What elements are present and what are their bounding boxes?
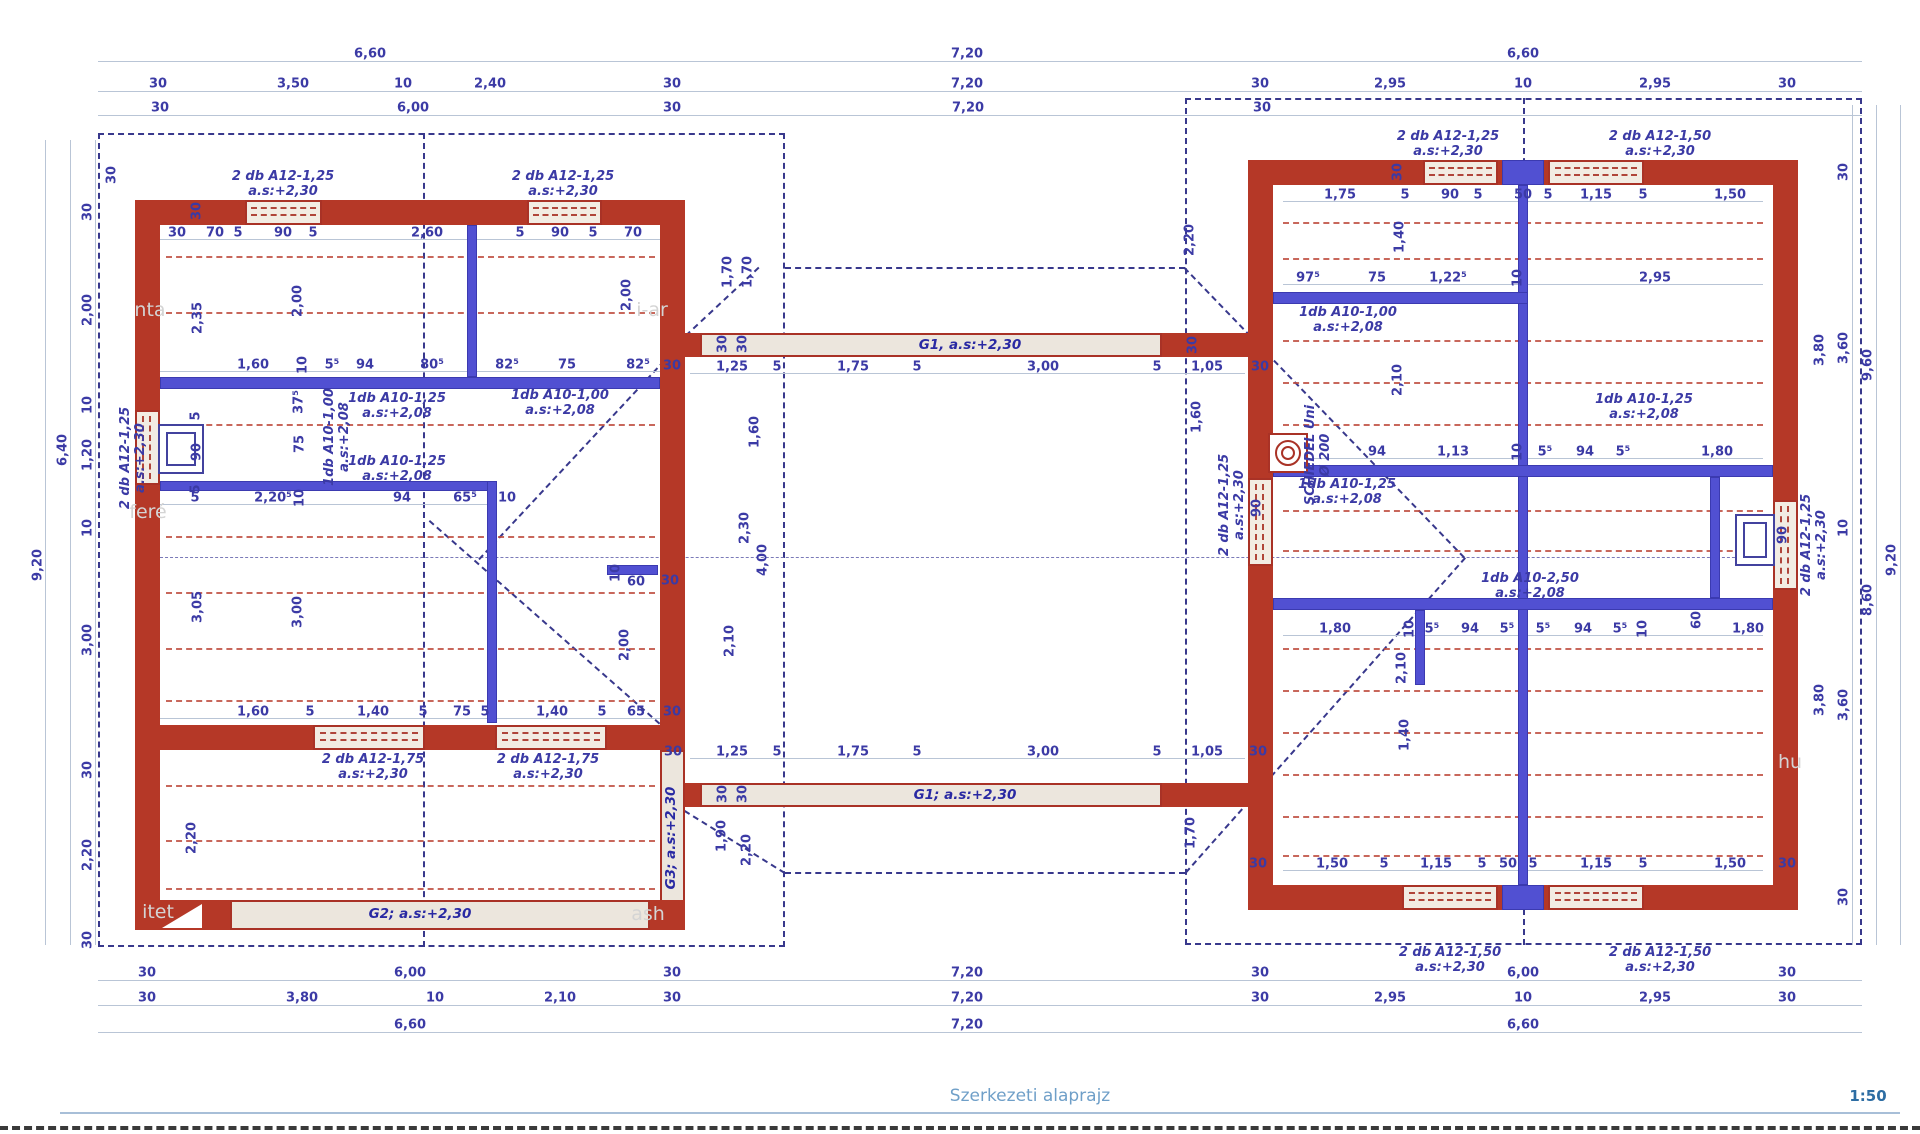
dim-label: 30 <box>716 785 731 803</box>
dim-label: 3,00 <box>81 624 96 656</box>
flue-block <box>1502 885 1544 910</box>
dim-label: 5 <box>912 745 921 760</box>
dim-label: 1,60 <box>748 416 763 448</box>
rebar-label: 1db A10-1,25a.s:+2,08 <box>1595 392 1693 422</box>
dim-label: 97⁵ <box>1296 271 1320 286</box>
reinforced-beam <box>1273 292 1528 304</box>
dim-label: 75 <box>558 358 576 373</box>
dim-label: 30 <box>105 166 120 184</box>
watermark: itet <box>142 901 174 923</box>
wall-segment <box>1162 333 1248 357</box>
dim-label: 30 <box>661 574 679 589</box>
dim-label: 5⁵ <box>1616 445 1631 460</box>
rebar-label: 2 db A12-1,50a.s:+2,30 <box>1609 129 1711 159</box>
dim-label: 30 <box>1837 163 1852 181</box>
dim-label: 2,00 <box>291 285 306 317</box>
dim-label: 70 <box>624 226 642 241</box>
lintel <box>1548 160 1644 185</box>
watermark: hu <box>1778 751 1802 773</box>
dim-label: 5 <box>588 226 597 241</box>
dim-label: 3,00 <box>291 596 306 628</box>
dim-label: 1,25 <box>716 745 748 760</box>
page-edge-dashes <box>0 1126 1920 1130</box>
dim-label: 1,05 <box>1191 745 1223 760</box>
dim-label: 5 <box>418 705 427 720</box>
dim-label: 30 <box>736 335 751 353</box>
rebar-label: 2 db A12-1,25a.s:+2,30 <box>1217 454 1247 556</box>
dim-label: 1,20 <box>81 439 96 471</box>
dim-line <box>45 140 46 945</box>
dim-label: 90 <box>274 226 292 241</box>
dim-label: 5 <box>1638 188 1647 203</box>
dim-label: 6,00 <box>397 101 429 116</box>
dim-label: 2,10 <box>723 625 738 657</box>
dim-label: 1,40 <box>536 705 568 720</box>
dim-label: 70 <box>206 226 224 241</box>
dim-label: 9,20 <box>31 549 46 581</box>
dim-label: 75 <box>293 435 308 453</box>
dim-label: 10 <box>1837 519 1852 537</box>
dim-label: 6,00 <box>1507 966 1539 981</box>
dim-label: 37⁵ <box>292 390 307 414</box>
dim-label: 1,80 <box>1319 622 1351 637</box>
dim-line <box>160 371 660 372</box>
dim-label: 7,20 <box>951 47 983 62</box>
dim-label: 3,80 <box>286 991 318 1006</box>
dim-label: 7,20 <box>951 77 983 92</box>
dim-label: 94 <box>1576 445 1594 460</box>
dim-label: 94 <box>1461 622 1479 637</box>
dim-label: 90 <box>190 443 205 461</box>
dim-label: 30 <box>1778 77 1796 92</box>
dim-label: 5 <box>1379 857 1388 872</box>
rebar-label: 2 db A12-1,50a.s:+2,30 <box>1399 945 1501 975</box>
dim-label: 65 <box>627 705 645 720</box>
dim-label: 94 <box>1574 622 1592 637</box>
drawing-title: Szerkezeti alaprajz <box>950 1086 1110 1106</box>
dim-label: 1,40 <box>1393 221 1408 253</box>
dim-label: 2,30 <box>738 512 753 544</box>
dim-label: 1,75 <box>837 360 869 375</box>
dim-label: 30 <box>1251 77 1269 92</box>
dim-label: 1,70 <box>721 256 736 288</box>
dim-label: 2,95 <box>1639 77 1671 92</box>
dim-label: 5 <box>1528 857 1537 872</box>
dim-label: 2,95 <box>1374 77 1406 92</box>
lintel <box>245 200 322 225</box>
dim-label: 7,20 <box>951 1018 983 1033</box>
dim-label: 30 <box>663 101 681 116</box>
rebar-label: 1db A10-2,50a.s:+2,08 <box>1481 571 1579 601</box>
dim-label: 7,20 <box>952 101 984 116</box>
beam-label: G1, a.s:+2,30 <box>919 337 1022 353</box>
rebar-label: 1db A10-1,00a.s:+2,08 <box>511 388 609 418</box>
lintel <box>527 200 602 225</box>
dim-label: 1,15 <box>1580 857 1612 872</box>
dim-line <box>95 140 96 945</box>
dim-label: 1,25 <box>716 360 748 375</box>
flue-block <box>1502 160 1544 185</box>
rebar-label: 2 db A12-1,50a.s:+2,30 <box>1609 945 1711 975</box>
dim-label: 30 <box>664 745 682 760</box>
dim-label: 10 <box>1403 620 1418 638</box>
dim-line <box>1852 105 1853 945</box>
dim-label: 30 <box>1391 163 1406 181</box>
dim-label: 30 <box>151 101 169 116</box>
reinforced-beam <box>1273 465 1773 477</box>
dim-label: 2,20 <box>1183 224 1198 256</box>
dim-label: 5 <box>189 411 204 420</box>
dim-line <box>70 140 71 945</box>
beam-label: G3; a.s:+2,30 <box>663 787 679 890</box>
floor-plan-canvas: Szerkezeti alaprajz 1:50 6,607,206,60303… <box>0 0 1920 1134</box>
dim-label: 1,75 <box>1324 188 1356 203</box>
dim-label: 2,20 <box>740 834 755 866</box>
rebar-label: 2 db A12-1,75a.s:+2,30 <box>497 752 599 782</box>
dim-label: 9,20 <box>1885 544 1900 576</box>
dim-label: 1,80 <box>1701 445 1733 460</box>
dim-label: 5 <box>597 705 606 720</box>
slab-span-line <box>166 840 655 842</box>
dim-label: 30 <box>663 705 681 720</box>
dim-label: 90 <box>1441 188 1459 203</box>
dim-label: 5 <box>912 360 921 375</box>
dim-label: 50 <box>1514 188 1532 203</box>
slab-span-line <box>166 256 655 258</box>
dim-label: 50 <box>1499 857 1517 872</box>
wall-segment <box>1162 783 1248 807</box>
dim-label: 10 <box>293 489 308 507</box>
dim-label: 10 <box>498 491 516 506</box>
dim-label: 3,60 <box>1837 332 1852 364</box>
slab-span-line <box>166 592 655 594</box>
dim-label: 10 <box>1636 620 1651 638</box>
dim-label: 1,60 <box>237 705 269 720</box>
wall-segment <box>685 783 700 807</box>
dim-label: 90 <box>1250 499 1265 517</box>
slab-span-line <box>166 312 655 314</box>
lintel <box>495 725 607 750</box>
dim-label: 5⁵ <box>325 358 340 373</box>
rebar-label: 1db A10-1,00a.s:+2,08 <box>1299 305 1397 335</box>
dim-label: 2,95 <box>1639 271 1671 286</box>
dim-label: 3,50 <box>277 77 309 92</box>
dim-label: 1,22⁵ <box>1429 271 1467 286</box>
dim-label: 2,20 <box>81 839 96 871</box>
reinforced-column <box>467 225 477 377</box>
dim-label: 75 <box>1368 271 1386 286</box>
chimney-label: SCHIEDEL UniØ 200 <box>1303 405 1333 505</box>
dim-label: 1,60 <box>1190 401 1205 433</box>
slab-span-line <box>166 785 655 787</box>
dim-label: 80⁵ <box>420 358 444 373</box>
dim-label: 3,80 <box>1813 334 1828 366</box>
lintel <box>1773 500 1798 590</box>
dim-label: 2,10 <box>1395 652 1410 684</box>
wall-segment <box>135 200 685 225</box>
dim-label: 5 <box>1638 857 1647 872</box>
dim-label: 1,80 <box>1732 622 1764 637</box>
rebar-label: 1db A10-1,25a.s:+2,08 <box>348 454 446 484</box>
dim-label: 30 <box>138 991 156 1006</box>
rebar-label: 2 db A12-1,25a.s:+2,30 <box>1397 129 1499 159</box>
lintel <box>313 725 425 750</box>
dim-label: 5 <box>1473 188 1482 203</box>
dim-label: 5 <box>1477 857 1486 872</box>
dim-label: 30 <box>1249 857 1267 872</box>
dim-label: 1,15 <box>1420 857 1452 872</box>
lintel <box>1548 885 1644 910</box>
roof-connector-top <box>785 267 1185 269</box>
dim-label: 1,15 <box>1580 188 1612 203</box>
dim-label: 5 <box>190 491 199 506</box>
dim-label: 1,40 <box>357 705 389 720</box>
dim-label: 3,05 <box>191 591 206 623</box>
dim-label: 10 <box>81 519 96 537</box>
rebar-label: 2 db A12-1,25a.s:+2,30 <box>232 169 334 199</box>
wall-segment <box>135 225 160 930</box>
dim-label: 5 <box>1152 360 1161 375</box>
dim-label: 2,00 <box>618 629 633 661</box>
axis-line-horizontal <box>135 557 1795 558</box>
dim-label: 10 <box>1511 443 1526 461</box>
lintel <box>1402 885 1498 910</box>
dim-label: 2,20 <box>185 822 200 854</box>
dim-label: 5 <box>515 226 524 241</box>
dim-label: 30 <box>138 966 156 981</box>
dim-label: 10 <box>426 991 444 1006</box>
drawing-scale: 1:50 <box>1849 1087 1886 1105</box>
dim-label: 10 <box>1514 77 1532 92</box>
dim-label: 5 <box>1400 188 1409 203</box>
dim-label: 60 <box>1690 611 1705 629</box>
dim-label: 2,10 <box>544 991 576 1006</box>
slab-span-line <box>166 536 655 538</box>
dim-label: 6,60 <box>354 47 386 62</box>
dim-label: 10 <box>81 396 96 414</box>
dim-label: 94 <box>393 491 411 506</box>
reinforced-column <box>1710 477 1720 598</box>
dim-label: 2,95 <box>1639 991 1671 1006</box>
dim-line <box>1876 105 1877 945</box>
dim-label: 30 <box>1778 966 1796 981</box>
dim-label: 1,50 <box>1714 857 1746 872</box>
dim-label: 5⁵ <box>1613 622 1628 637</box>
dim-label: 90 <box>551 226 569 241</box>
dim-label: 5⁵ <box>1425 622 1440 637</box>
dim-label: 2,00 <box>620 279 635 311</box>
dim-label: 30 <box>1251 991 1269 1006</box>
dim-label: 6,00 <box>394 966 426 981</box>
chimney-flue-inner <box>1281 446 1295 460</box>
dim-label: 2,35 <box>191 302 206 334</box>
dim-label: 3,80 <box>1813 684 1828 716</box>
dim-label: 30 <box>1778 991 1796 1006</box>
rebar-label: 2 db A12-1,75a.s:+2,30 <box>322 752 424 782</box>
dim-label: 7,20 <box>951 991 983 1006</box>
reinforced-wall <box>1518 185 1528 885</box>
slab-span-line <box>166 700 655 702</box>
dim-label: 4,00 <box>756 544 771 576</box>
dim-label: 10 <box>1511 269 1526 287</box>
dim-label: 2,95 <box>1374 991 1406 1006</box>
dim-label: 30 <box>663 359 681 374</box>
dim-label: 30 <box>1251 966 1269 981</box>
dim-label: 10 <box>394 77 412 92</box>
watermark: nta <box>134 299 165 321</box>
dim-label: 60 <box>627 575 645 590</box>
lintel <box>1423 160 1498 185</box>
dim-label: 8,60 <box>1861 584 1876 616</box>
dim-label: 2,60 <box>411 226 443 241</box>
dim-label: 90 <box>1776 526 1791 544</box>
dim-label: 6,60 <box>394 1018 426 1033</box>
dim-label: 30 <box>81 203 96 221</box>
dim-label: 94 <box>1368 445 1386 460</box>
dim-label: 5⁵ <box>1536 622 1551 637</box>
dim-label: 30 <box>1778 857 1796 872</box>
dim-label: 10 <box>609 564 624 582</box>
dim-label: 65⁵ <box>453 491 477 506</box>
dim-label: 30 <box>1186 336 1201 354</box>
dim-label: 5 <box>772 360 781 375</box>
title-rule <box>60 1112 1900 1114</box>
rebar-label: 2 db A12-1,25a.s:+2,30 <box>512 169 614 199</box>
watermark: ash <box>631 903 665 925</box>
dim-line <box>160 718 660 719</box>
dim-label: 1,13 <box>1437 445 1469 460</box>
dim-label: 30 <box>1253 101 1271 116</box>
dim-label: 1,70 <box>741 256 756 288</box>
rebar-label: 2 db A12-1,25a.s:+2,30 <box>1799 494 1829 596</box>
dim-label: 1,40 <box>1398 719 1413 751</box>
dim-label: 1,75 <box>837 745 869 760</box>
dim-label: 3,00 <box>1027 745 1059 760</box>
dim-label: 10 <box>296 356 311 374</box>
dim-label: 30 <box>663 991 681 1006</box>
dim-label: 2,40 <box>474 77 506 92</box>
rebar-label: 2 db A12-1,25a.s:+2,30 <box>118 407 148 509</box>
dim-label: 5 <box>308 226 317 241</box>
dim-label: 2,00 <box>81 294 96 326</box>
beam-label: G1; a.s:+2,30 <box>914 787 1017 803</box>
dim-label: 5 <box>305 705 314 720</box>
dim-label: 1,90 <box>715 820 730 852</box>
dim-label: 30 <box>190 202 205 220</box>
dim-label: 30 <box>663 77 681 92</box>
dim-label: 30 <box>168 226 186 241</box>
dim-label: 1,60 <box>237 358 269 373</box>
dim-label: 6,60 <box>1507 1018 1539 1033</box>
dim-label: 30 <box>149 77 167 92</box>
dim-label: 2,10 <box>1391 364 1406 396</box>
dim-line <box>1900 105 1901 945</box>
wall-segment <box>685 333 700 357</box>
dim-line <box>160 504 497 505</box>
dim-label: 1,70 <box>1184 817 1199 849</box>
dim-label: 1,05 <box>1191 360 1223 375</box>
dim-label: 1,50 <box>1714 188 1746 203</box>
dim-label: 5 <box>480 705 489 720</box>
dim-label: 3,60 <box>1837 689 1852 721</box>
dim-label: 6,60 <box>1507 47 1539 62</box>
dim-label: 30 <box>716 335 731 353</box>
dim-label: 94 <box>356 358 374 373</box>
dim-label: 30 <box>1249 745 1267 760</box>
dim-label: 5⁵ <box>1500 622 1515 637</box>
slab-span-line <box>166 888 655 890</box>
dim-label: 5 <box>1543 188 1552 203</box>
dim-label: 30 <box>1251 360 1269 375</box>
dim-label: 30 <box>736 785 751 803</box>
watermark: i-ar <box>636 299 668 321</box>
window-symbol <box>1743 522 1767 558</box>
slab-span-line <box>166 648 655 650</box>
dim-label: 5 <box>1152 745 1161 760</box>
dim-label: 7,20 <box>951 966 983 981</box>
dim-label: 2,20⁵ <box>254 491 292 506</box>
reinforced-column <box>487 481 497 723</box>
slab-span-line <box>166 424 655 426</box>
dim-label: 75 <box>453 705 471 720</box>
dim-label: 6,40 <box>56 434 71 466</box>
dim-label: 5 <box>233 226 242 241</box>
lintel <box>1248 478 1273 566</box>
rebar-label: 1db A10-1,25a.s:+2,08 <box>348 391 446 421</box>
dim-label: 30 <box>1837 888 1852 906</box>
dim-label: 1,50 <box>1316 857 1348 872</box>
dim-label: 5 <box>772 745 781 760</box>
beam-label: G2; a.s:+2,30 <box>369 906 472 922</box>
dim-label: 82⁵ <box>495 358 519 373</box>
dim-label: 10 <box>1514 991 1532 1006</box>
dim-label: 9,60 <box>1861 349 1876 381</box>
dim-label: 5⁵ <box>1538 445 1553 460</box>
roof-connector-bottom <box>785 872 1185 874</box>
dim-label: 82⁵ <box>626 358 650 373</box>
dim-label: 30 <box>663 966 681 981</box>
dim-label: 30 <box>81 931 96 949</box>
dim-label: 30 <box>81 761 96 779</box>
dim-label: 3,00 <box>1027 360 1059 375</box>
